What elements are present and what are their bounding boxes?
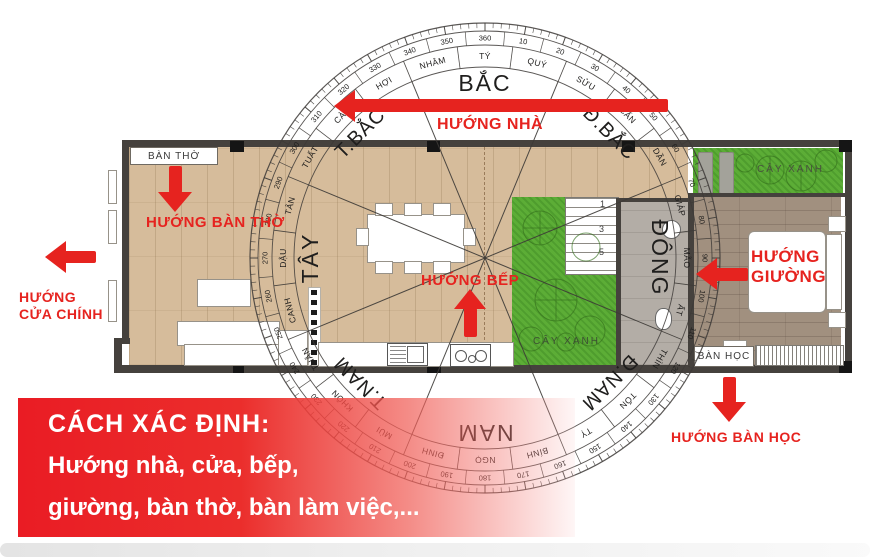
door-post [622, 141, 635, 152]
fengshui-house-direction-diagram: 1 3 5 BÀN THỜ [0, 0, 870, 559]
compass-degree-label: 40 [620, 83, 632, 95]
stove-burner [455, 350, 467, 362]
staircase [565, 197, 619, 275]
altar-label: BÀN THỜ [130, 147, 218, 165]
banner-title: CÁCH XÁC ĐỊNH: [48, 410, 270, 439]
wall-under-garden [688, 193, 845, 197]
dining-table [367, 214, 465, 263]
dining-chair [375, 203, 393, 216]
sofa-back [177, 321, 280, 346]
house-direction-arrowhead [334, 90, 355, 122]
altar-direction-arrow [169, 166, 182, 193]
dining-chair [404, 261, 422, 274]
stair-number: 1 [600, 199, 605, 209]
compass-degree-label: 310 [309, 109, 324, 124]
dining-chair [375, 261, 393, 274]
stove-burner [475, 350, 487, 362]
compass-mountain-label: HỢI [374, 74, 394, 91]
dining-chair [433, 203, 451, 216]
stair-number: 5 [599, 247, 604, 257]
compass-degree-label: 350 [440, 36, 454, 47]
stove-burner [468, 355, 476, 363]
wall-left [122, 140, 129, 342]
kitchen-sink-basin [407, 346, 424, 363]
desk-direction-arrowhead [712, 402, 746, 422]
compass-degree-label: 150 [587, 441, 602, 455]
main-door-label-2: CỬA CHÍNH [19, 306, 103, 322]
garden-paver [698, 152, 713, 194]
desk-direction-label: HƯỚNG BÀN HỌC [671, 429, 801, 445]
wall-left-step-ledge [114, 338, 130, 344]
wall-bathroom-top [616, 198, 693, 202]
bathroom-sink [662, 220, 681, 239]
altar-direction-arrowhead [158, 192, 192, 212]
bed-direction-arrow [713, 268, 748, 281]
kitchen-direction-arrow [464, 308, 477, 337]
desk-surface [755, 345, 844, 366]
compass-mountain-label: QUÝ [526, 55, 548, 70]
green-center-label: CÂY XANH [533, 336, 600, 347]
wall-right [845, 140, 852, 373]
desk-label: BÀN HỌC [694, 346, 754, 367]
bed-direction-label-1: HƯỚNG [751, 247, 820, 267]
compass-mountain-label: TỐN [617, 390, 639, 412]
compass-degree-label: 360 [479, 34, 492, 43]
coffee-table [197, 279, 251, 307]
banner-line2: Hướng nhà, cửa, bếp, [48, 452, 299, 480]
bed-direction-label-2: GIƯỜNG [751, 267, 826, 287]
door-post [230, 141, 244, 152]
main-door-arrow [62, 251, 96, 263]
compass-cardinal-label: BẮC [458, 69, 511, 96]
compass-degree-label: 50 [647, 110, 659, 122]
compass-degree-label: 130 [646, 392, 661, 407]
sofa-side [278, 330, 308, 366]
main-door-label-1: HƯỚNG [19, 289, 76, 305]
door-post [427, 141, 440, 152]
bed-direction-arrowhead [696, 258, 717, 290]
compass-mountain-label: TÝ [479, 51, 491, 61]
bottom-shadow [0, 543, 870, 557]
stair-number: 3 [599, 224, 604, 234]
bed-headboard [826, 234, 842, 310]
window-sill [108, 280, 117, 322]
compass-degree-label: 140 [619, 419, 634, 434]
compass-mountain-label: SỬU [575, 73, 598, 93]
altar-direction-label: HƯỚNG BÀN THỜ [146, 214, 285, 231]
caption-banner: CÁCH XÁC ĐỊNH: Hướng nhà, cửa, bếp, giườ… [18, 398, 575, 537]
nightstand [828, 216, 846, 232]
garden-paver [719, 152, 734, 194]
dining-chair [463, 228, 476, 246]
window-sill [108, 170, 117, 204]
compass-mountain-label: NHÂM [418, 55, 447, 72]
kitchen-direction-label: HƯỚNG BẾP [421, 272, 519, 289]
nightstand [828, 312, 846, 328]
banner-line3: giường, bàn thờ, bàn làm việc,... [48, 494, 420, 522]
compass-degree-label: 330 [367, 60, 382, 74]
toilet [655, 308, 672, 330]
wall-bathroom-left [616, 198, 621, 373]
house-direction-label: HƯỚNG NHÀ [437, 116, 543, 134]
compass-degree-label: 10 [518, 36, 528, 46]
plan-centerline [484, 147, 485, 365]
sofa-seat [184, 344, 288, 366]
green-top-right-label: CÂY XANH [757, 164, 824, 175]
house-direction-arrow [352, 99, 668, 112]
compass-mountain-label: TỴ [578, 426, 593, 441]
dining-chair [356, 228, 369, 246]
door-post [839, 140, 852, 152]
kitchen-direction-arrowhead [454, 289, 486, 309]
compass-degree-label: 340 [402, 45, 417, 58]
compass-degree-label: 20 [555, 46, 566, 57]
compass-degree-label: 30 [589, 61, 601, 73]
dining-chair [404, 203, 422, 216]
window-sill [108, 210, 117, 244]
desk-direction-arrow [723, 377, 736, 403]
main-door-arrowhead [45, 241, 66, 273]
